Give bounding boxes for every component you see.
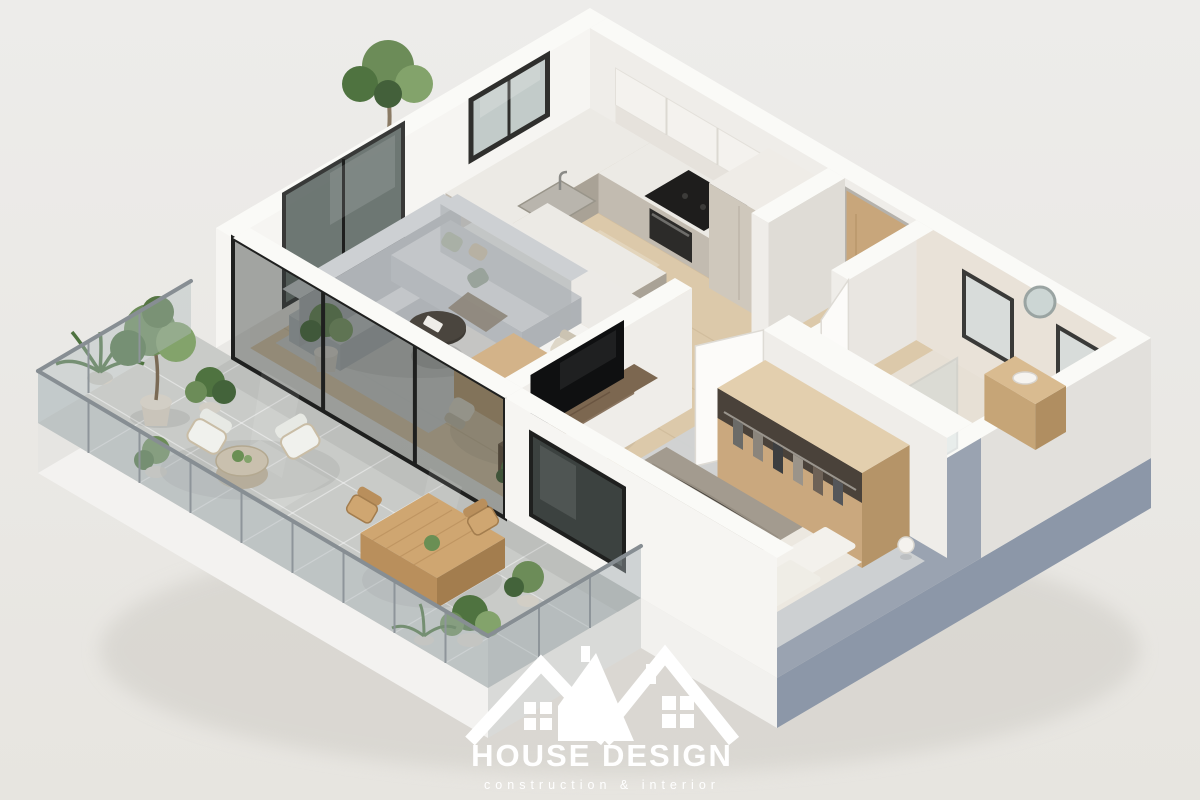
floorplan-render: HOUSE DESIGN construction & interior [0, 0, 1200, 800]
logo-title: HOUSE DESIGN [471, 738, 733, 773]
sink-basin [1013, 372, 1037, 384]
bedside-lamp [898, 537, 914, 560]
chimney-icon [581, 646, 590, 662]
table-plant [424, 535, 440, 551]
logo-subtitle: construction & interior [484, 778, 720, 792]
bathroom-mirror [1025, 287, 1055, 317]
isometric-floorplan-scene: HOUSE DESIGN construction & interior [0, 0, 1200, 800]
chimney-icon [646, 664, 656, 684]
